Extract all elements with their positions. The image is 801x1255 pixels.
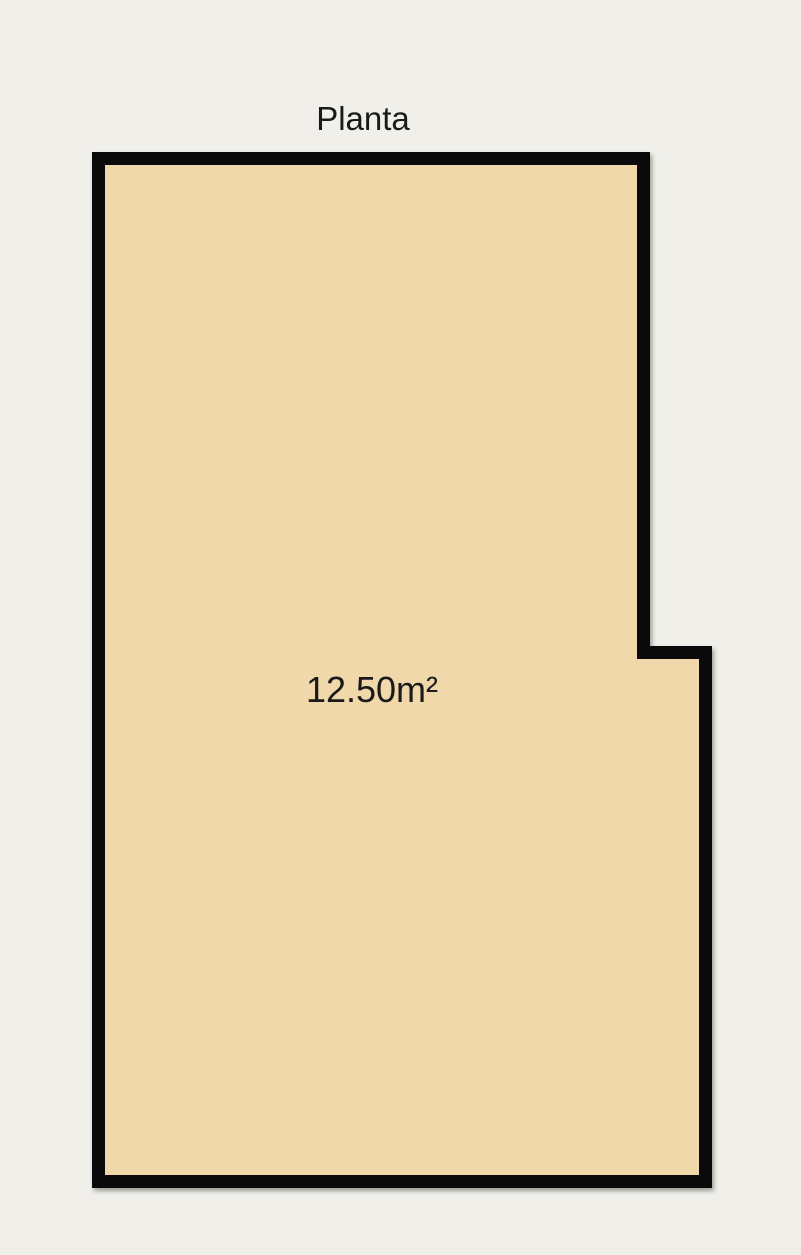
floor-plan-canvas: Planta 12.50m² — [0, 0, 801, 1255]
floor-plan-drawing: 12.50m² — [0, 0, 801, 1255]
room-area-label: 12.50m² — [306, 669, 438, 710]
